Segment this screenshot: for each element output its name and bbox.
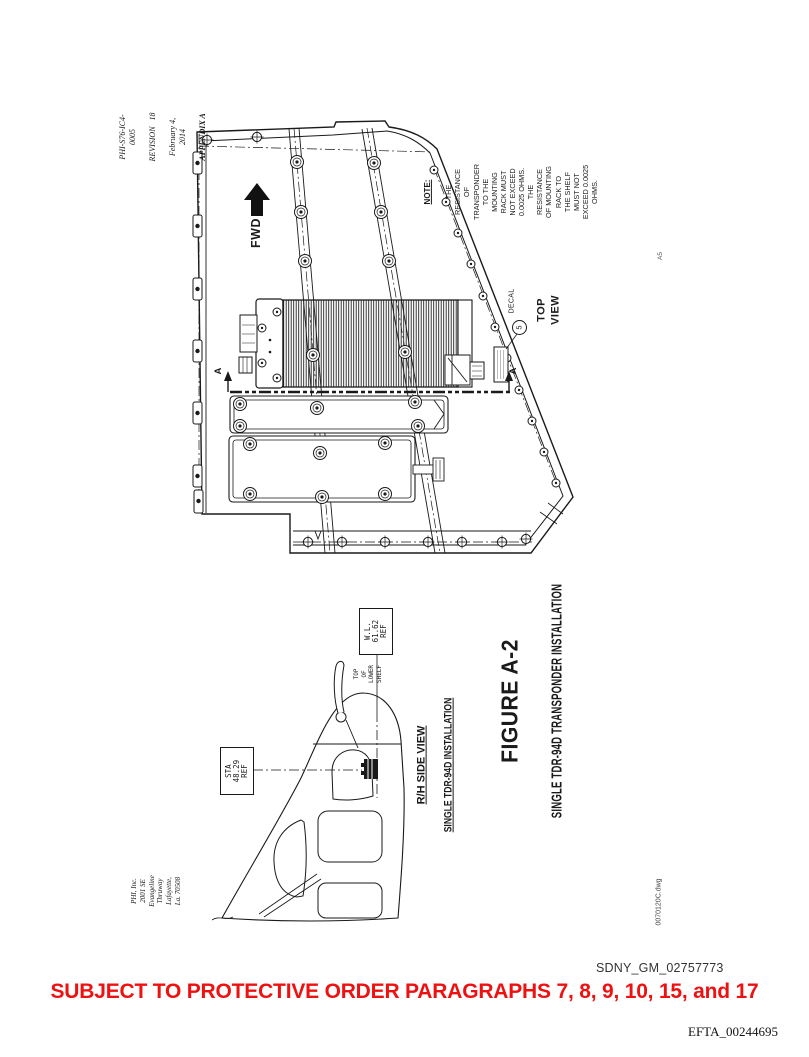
bates-sdny: SDNY_GM_02757773	[596, 961, 724, 975]
doc-number: PHI-S76-IC4-0005	[118, 112, 138, 161]
balloon-number: 5	[515, 325, 524, 329]
note-body: THE RESISTANCE OF TRANSPONDER TO THE MOU…	[444, 164, 599, 220]
doc-revision: REVISION 18	[148, 112, 158, 161]
figure-title: SINGLE TDR-94D TRANSPONDER INSTALLATION	[548, 584, 566, 818]
wl-ref-box: W.L. 61.62 REF	[359, 608, 393, 655]
transponder-unit	[239, 299, 484, 388]
doc-appendix: APPENDIX A	[198, 112, 208, 161]
document-page: PHI-S76-IC4-0005 REVISION 18 February 4,…	[0, 0, 809, 1057]
transponder-body	[283, 300, 458, 387]
figure-number: FIGURE A-2	[496, 538, 525, 865]
sta-ref-box: STA 48.29 REF	[220, 747, 254, 795]
note-title: NOTE:	[423, 164, 433, 220]
balloon-5-callout: 5	[512, 320, 527, 335]
protective-order-banner: SUBJECT TO PROTECTIVE ORDER PARAGRAPHS 7…	[0, 980, 809, 1004]
decal-sticker	[494, 347, 508, 382]
side-view-label: R/H SIDE VIEW	[415, 679, 429, 852]
side-view-sublabel: SINGLE TDR-94D INSTALLATION	[443, 698, 457, 833]
bates-efta: EFTA_00244695	[688, 1024, 778, 1040]
doc-date: February 4, 2014	[168, 112, 188, 161]
